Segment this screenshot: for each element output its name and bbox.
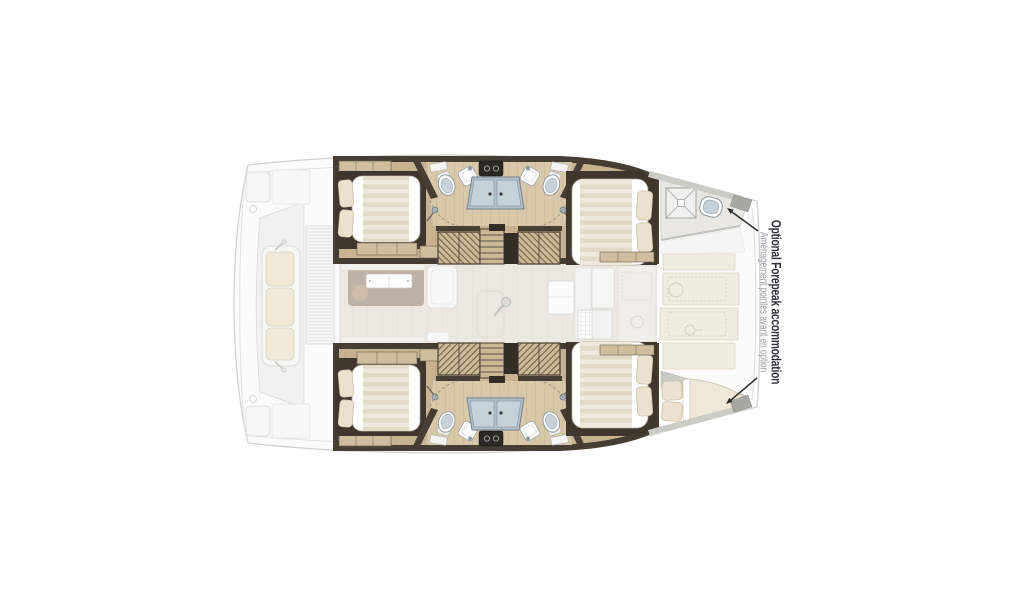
coffee-table bbox=[366, 274, 412, 288]
transom-platform-bottom bbox=[246, 406, 270, 436]
foredeck-panel bbox=[663, 343, 735, 369]
galley-counter bbox=[548, 281, 574, 314]
door-handle bbox=[488, 192, 491, 195]
aft-bed-duvet-stripes bbox=[363, 176, 409, 242]
foredeck-panel bbox=[663, 254, 735, 270]
bench-cushion bbox=[266, 252, 294, 286]
boat-floor-plan: Optional Forepeak accommodation Aménagem… bbox=[0, 0, 1024, 600]
pillow bbox=[338, 209, 354, 237]
deck-hatch-icon bbox=[666, 188, 696, 218]
cleat-bottom bbox=[250, 396, 257, 403]
aft-deck-box-top bbox=[272, 170, 310, 204]
bench-cushion bbox=[266, 328, 294, 360]
lamp-glow bbox=[352, 285, 368, 301]
forward-cabin bbox=[566, 171, 657, 265]
pillow bbox=[636, 191, 653, 221]
partition-row-left bbox=[436, 226, 480, 231]
annotation-subtitle: Aménagement pointes avant en option bbox=[757, 232, 769, 372]
hull-cabins-bottom bbox=[333, 342, 659, 451]
annotation-title: Optional Forepeak accommodation bbox=[768, 220, 784, 384]
fridge-upper bbox=[592, 268, 614, 308]
transom-platform-top bbox=[246, 172, 270, 202]
saloon bbox=[339, 264, 657, 343]
pillow bbox=[338, 179, 354, 207]
foredeck-panel bbox=[663, 273, 739, 305]
step-notch bbox=[489, 224, 505, 231]
vanity-unit bbox=[479, 161, 503, 176]
hull-cabins-top bbox=[333, 156, 659, 265]
shower-cubicle bbox=[467, 177, 524, 209]
bench-cushion bbox=[266, 288, 294, 326]
door-handle bbox=[499, 192, 502, 195]
sofa-back-bottom bbox=[341, 337, 425, 343]
sofa-back-top bbox=[341, 264, 425, 270]
corridor-dark bbox=[504, 233, 518, 264]
berth-pillow bbox=[662, 380, 683, 400]
seat-lower bbox=[427, 332, 449, 342]
fwd-cabinet bbox=[600, 252, 654, 262]
floor-plan-svg: Optional Forepeak accommodation Aménagem… bbox=[0, 0, 1024, 600]
fridge-lower bbox=[592, 310, 612, 339]
pillow bbox=[636, 222, 653, 252]
aft-deck-box-bottom bbox=[272, 404, 310, 438]
berth-pillow bbox=[661, 401, 682, 421]
cleat-top bbox=[250, 206, 257, 213]
bed-bench bbox=[357, 243, 417, 255]
forward-panels bbox=[618, 266, 656, 342]
partition-row-right bbox=[518, 226, 562, 231]
louvered-door-slats bbox=[306, 226, 334, 344]
